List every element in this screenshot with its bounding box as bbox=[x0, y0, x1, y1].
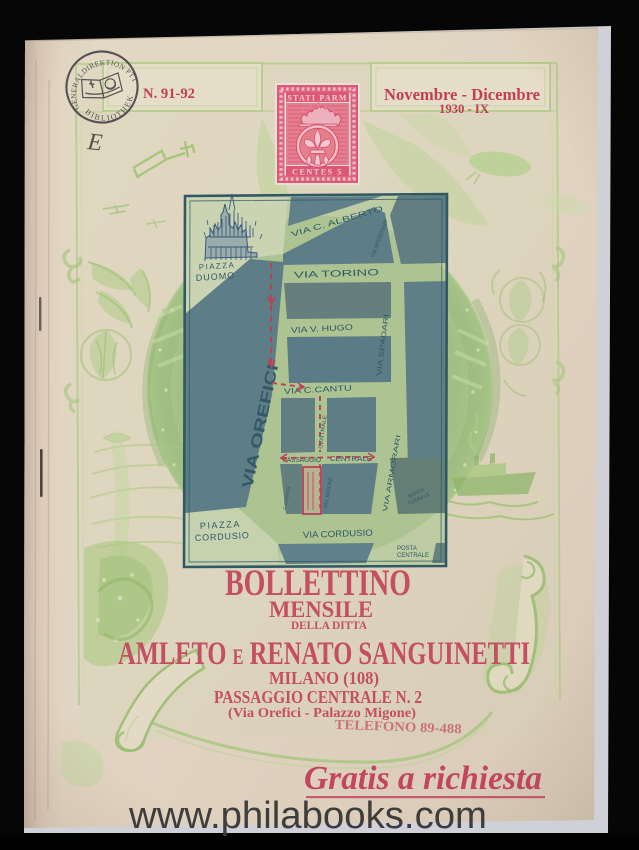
svg-text:www.philabooks.com: www.philabooks.com bbox=[128, 795, 487, 837]
